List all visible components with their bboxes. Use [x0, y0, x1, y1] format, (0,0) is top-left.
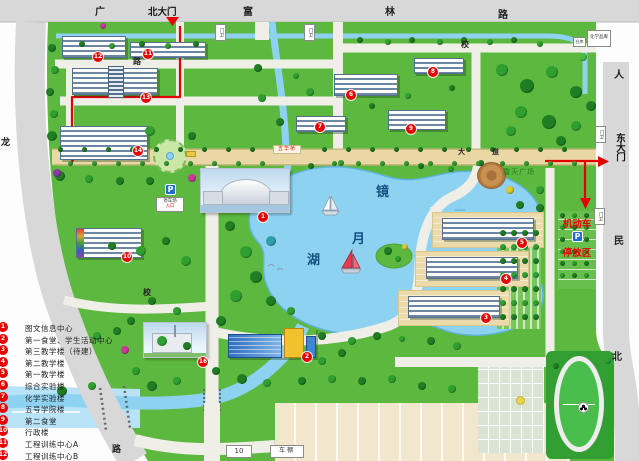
tree-icon: [147, 381, 157, 391]
lake-name-char: 镜: [376, 181, 389, 200]
tree-icon: [212, 161, 217, 166]
tree-icon: [240, 246, 252, 258]
tree-icon: [348, 337, 356, 345]
tree-icon: [132, 367, 140, 375]
map-marker-6: 6: [346, 90, 356, 100]
chemical-store-box: 化学品库: [587, 30, 611, 47]
tree-icon: [369, 103, 375, 109]
tree-icon: [202, 147, 207, 152]
bike-shed-box: 车棚: [270, 445, 304, 458]
tree-icon: [538, 147, 543, 152]
tree-icon: [373, 332, 381, 340]
tree-icon: [511, 244, 517, 250]
tree-icon: [399, 336, 405, 342]
tree-icon: [109, 43, 115, 49]
storehouse-box: 仓库: [573, 37, 586, 47]
tree-icon: [328, 375, 336, 383]
tree-icon: [584, 237, 589, 242]
legend-item-label: 第二食堂: [25, 416, 57, 427]
tree-icon: [263, 379, 271, 387]
map-marker-7: 7: [315, 122, 325, 132]
tree-icon: [85, 175, 93, 183]
road-name-char: 富: [243, 3, 253, 18]
tree-icon: [548, 161, 553, 166]
tree-icon: [193, 41, 199, 47]
tree-icon: [178, 147, 183, 152]
legend-marker-icon: 7: [0, 392, 8, 402]
tree-icon: [536, 186, 544, 194]
tree-icon: [164, 161, 169, 166]
tree-icon: [522, 258, 528, 264]
legend-item-label: 第二教学楼: [25, 358, 65, 369]
glass-wing: [228, 334, 282, 358]
library-photo: [200, 168, 290, 213]
tree-icon: [452, 161, 457, 166]
legend-item-label: 第三教学楼（待建）: [25, 346, 97, 357]
legend-item-label: 综合实验楼: [25, 381, 65, 392]
road-name-char: 民: [614, 232, 624, 247]
tree-icon: [298, 377, 306, 385]
tree-icon: [308, 163, 314, 169]
tree-icon: [556, 136, 566, 146]
tree-icon: [533, 258, 539, 264]
east-gate-label: 东大门: [612, 133, 626, 162]
tree-icon: [409, 37, 415, 43]
map-marker-2: 2: [302, 352, 312, 362]
tree-icon: [51, 66, 59, 74]
tree-icon: [346, 147, 351, 152]
tree-icon: [370, 147, 375, 152]
bush-icon: [266, 236, 276, 246]
parking-p-icon: P: [572, 231, 583, 242]
road-name-char: 路: [133, 56, 141, 67]
tree-icon: [584, 261, 589, 266]
tree-icon: [47, 131, 57, 141]
tree-icon: [154, 147, 159, 152]
tree-icon: [418, 382, 426, 390]
tree-icon: [500, 300, 506, 306]
tree-icon: [146, 177, 154, 185]
plaza-label: 露天广场: [503, 167, 535, 177]
tree-icon: [546, 66, 558, 78]
tree-icon: [306, 88, 314, 96]
tree-icon: [145, 126, 155, 136]
bush-icon: [121, 346, 129, 354]
tree-icon: [500, 314, 506, 320]
guard-post: 门卫: [595, 126, 606, 143]
tree-icon: [516, 201, 524, 209]
vehicle-parking-label: 机动车: [553, 216, 601, 230]
tree-icon: [511, 258, 517, 264]
tree-icon: [442, 147, 447, 152]
road-name-char: 路: [112, 442, 121, 455]
tree-icon: [524, 161, 529, 166]
right-road: [616, 62, 628, 461]
tree-icon: [116, 177, 124, 185]
tree-icon: [388, 375, 396, 383]
tree-icon: [584, 273, 589, 278]
spire: [174, 325, 176, 337]
tree-icon: [533, 272, 539, 278]
guard-post-label: 门卫: [218, 28, 223, 37]
parking-grid: [478, 367, 544, 453]
tree-icon: [260, 161, 265, 166]
amphitheater: [477, 162, 506, 189]
tree-icon: [605, 358, 611, 364]
map-marker-5: 5: [517, 238, 527, 248]
tree-icon: [572, 273, 577, 278]
road-name-char: 校: [143, 287, 151, 298]
tree-icon: [511, 272, 517, 278]
tree-icon: [357, 37, 363, 43]
building-college-5: [414, 58, 464, 74]
tree-icon: [88, 382, 96, 390]
guard-post-label: 门卫: [598, 130, 603, 139]
tree-icon: [560, 237, 565, 242]
map-marker-13: 13: [141, 93, 151, 103]
map-marker-3: 3: [481, 313, 491, 323]
tree-icon: [511, 37, 517, 43]
tree-icon: [560, 273, 565, 278]
tree-icon: [139, 41, 145, 47]
building-13: [72, 68, 158, 95]
bush-icon: [506, 186, 514, 194]
map-marker-10: 10: [122, 252, 132, 262]
tree-icon: [487, 39, 493, 45]
tree-icon: [520, 79, 534, 93]
tree-icon: [318, 357, 326, 365]
tree-icon: [148, 297, 156, 305]
legend-marker-icon: 12: [0, 450, 8, 460]
tree-icon: [287, 307, 295, 315]
bush-icon: [188, 174, 196, 182]
tree-icon: [522, 286, 528, 292]
tree-icon: [250, 271, 262, 283]
tree-icon: [522, 230, 528, 236]
tree-icon: [82, 147, 87, 152]
building-teaching-1: [442, 218, 534, 240]
tree-icon: [92, 161, 97, 166]
tree-icon: [572, 261, 577, 266]
tree-icon: [522, 272, 528, 278]
tree-icon: [427, 337, 435, 345]
tree-icon: [266, 296, 276, 306]
tree-icon: [404, 161, 409, 166]
legend-marker-icon: 2: [0, 334, 8, 344]
football-icon: [578, 402, 589, 413]
tree-icon: [437, 39, 443, 45]
bush-icon: [53, 169, 61, 177]
shed-number-box: 10: [226, 445, 252, 458]
building-dining-2: [388, 110, 446, 130]
legend-item-label: 第一食堂、学生活动中心: [25, 335, 113, 346]
tree-icon: [318, 332, 326, 340]
road-name-char: 道: [492, 147, 499, 157]
tree-icon: [380, 161, 385, 166]
tree-icon: [466, 147, 471, 152]
map-marker-16: 16: [198, 357, 208, 367]
tree-icon: [183, 342, 191, 350]
legend-item-label: 工程训练中心B: [25, 451, 79, 461]
road-name-char: 广: [95, 3, 105, 18]
tree-icon: [237, 374, 247, 384]
tree-icon: [536, 204, 544, 212]
tree-icon: [448, 166, 454, 172]
road-name-char: 路: [498, 6, 508, 21]
tree-icon: [586, 101, 596, 111]
tree-icon: [127, 317, 135, 325]
guard-post: 门卫: [215, 24, 226, 41]
campus-road: [204, 403, 220, 461]
tree-icon: [250, 147, 255, 152]
tree-icon: [136, 246, 146, 256]
tree-icon: [500, 230, 506, 236]
tree-icon: [225, 221, 235, 231]
legend-item-label: 第一教学楼: [25, 369, 65, 380]
tree-icon: [116, 161, 121, 166]
tree-icon: [405, 93, 411, 99]
tree-icon: [453, 342, 461, 350]
road-name-char: 人: [614, 66, 624, 81]
road-name-char: 龙: [1, 135, 10, 148]
map-marker-14: 14: [133, 146, 143, 156]
tree-icon: [173, 377, 181, 385]
tree-icon: [511, 300, 517, 306]
tree-icon: [181, 256, 191, 266]
bridge-label: 五华桥: [273, 145, 301, 154]
tree-icon: [562, 147, 567, 152]
tree-icon: [188, 132, 196, 140]
legend-item-label: 化学实验楼: [25, 393, 65, 404]
tree-icon: [188, 161, 193, 166]
tree-icon: [68, 161, 73, 166]
tree-icon: [173, 307, 181, 315]
tree-icon: [140, 161, 145, 166]
campus-map: 五华桥 10 车棚 仓库 化学品库 P 停车场入口 P 机动车 停放区 露天广场…: [0, 0, 639, 461]
lake-name-char: 湖: [307, 249, 320, 268]
tree-icon: [533, 300, 539, 306]
tree-icon: [572, 161, 577, 166]
tree-icon: [579, 53, 587, 61]
parking-p-icon: P: [165, 184, 176, 195]
volleyball-icon: [516, 396, 525, 405]
tree-icon: [514, 147, 519, 152]
road-name-char: 大: [458, 147, 465, 157]
guard-post-label: 门卫: [307, 28, 312, 37]
tree-icon: [338, 160, 344, 166]
tree-icon: [113, 327, 121, 335]
tree-icon: [448, 385, 456, 393]
tree-icon: [293, 73, 299, 79]
fountain-plaza: [153, 139, 187, 173]
tree-icon: [522, 300, 528, 306]
tree-icon: [216, 316, 226, 326]
tree-icon: [533, 286, 539, 292]
tree-icon: [46, 88, 54, 96]
tree-icon: [276, 118, 284, 126]
fountain-icon: [166, 152, 174, 160]
lake-name-char: 月: [352, 228, 365, 247]
tree-icon: [449, 85, 455, 91]
tree-icon: [553, 363, 559, 369]
tree-icon: [500, 161, 505, 166]
tree-icon: [58, 147, 63, 152]
bush-icon: [100, 23, 106, 29]
tree-icon: [476, 161, 481, 166]
west-parking-label: 停车场入口: [156, 197, 184, 212]
tree-icon: [162, 237, 170, 245]
tree-icon: [496, 64, 508, 76]
tree-icon: [500, 244, 506, 250]
tree-icon: [79, 41, 85, 47]
legend-item-label: 图文信息中心: [25, 323, 73, 334]
bush-icon: [402, 244, 408, 250]
tree-icon: [542, 115, 556, 129]
tree-icon: [356, 161, 361, 166]
map-marker-12: 12: [93, 52, 103, 62]
tree-icon: [511, 314, 517, 320]
tree-icon: [511, 286, 517, 292]
guard-post: 门卫: [304, 24, 315, 41]
map-marker-4: 4: [501, 274, 511, 284]
north-gate-label: 北大门: [148, 4, 177, 18]
road-name-char: 林: [385, 3, 395, 18]
tree-icon: [570, 86, 582, 98]
tree-icon: [506, 126, 516, 136]
tree-icon: [394, 147, 399, 152]
tree-icon: [50, 110, 58, 118]
tree-icon: [522, 314, 528, 320]
tree-icon: [157, 336, 167, 346]
tree-icon: [108, 242, 116, 250]
legend-item-label: 行政楼: [25, 427, 49, 438]
road-name-char: 北: [612, 348, 622, 363]
tree-icon: [165, 43, 171, 49]
tree-icon: [418, 147, 423, 152]
map-marker-9: 9: [406, 124, 416, 134]
road-name-char: 校: [461, 39, 469, 50]
tree-icon: [358, 377, 366, 385]
map-marker-8: 8: [428, 67, 438, 77]
tree-icon: [537, 41, 543, 47]
tree-icon: [500, 286, 506, 292]
tree-icon: [533, 230, 539, 236]
tree-icon: [236, 161, 241, 166]
tree-icon: [230, 290, 242, 302]
tree-icon: [226, 147, 231, 152]
tree-icon: [338, 349, 346, 357]
tree-icon: [332, 161, 337, 166]
tree-icon: [571, 121, 581, 131]
legend-item-label: 五号学院楼: [25, 404, 65, 415]
tree-icon: [533, 314, 539, 320]
tree-icon: [106, 147, 111, 152]
map-marker-11: 11: [143, 49, 153, 59]
tree-icon: [418, 163, 424, 169]
tree-icon: [384, 247, 392, 255]
tree-icon: [515, 106, 527, 118]
tree-icon: [560, 261, 565, 266]
tree-icon: [322, 147, 327, 152]
tree-icon: [212, 367, 220, 375]
tree-icon: [500, 258, 506, 264]
yellow-tower: [284, 328, 304, 358]
tree-icon: [428, 161, 433, 166]
vehicle-parking-label: 停放区: [553, 245, 601, 259]
legend-item-label: 工程训练中心A: [25, 439, 79, 450]
tree-icon: [385, 39, 391, 45]
building-photo-16: [143, 322, 207, 358]
building-comprehensive-lab: [334, 74, 398, 96]
tree-icon: [254, 64, 262, 72]
tree-icon: [258, 94, 266, 102]
tree-icon: [48, 44, 56, 52]
map-marker-1: 1: [258, 212, 268, 222]
facade-stripe: [77, 229, 84, 257]
tree-icon: [395, 256, 401, 262]
tree-icon: [533, 244, 539, 250]
tree-icon: [511, 230, 517, 236]
bus-stop: [186, 151, 196, 157]
